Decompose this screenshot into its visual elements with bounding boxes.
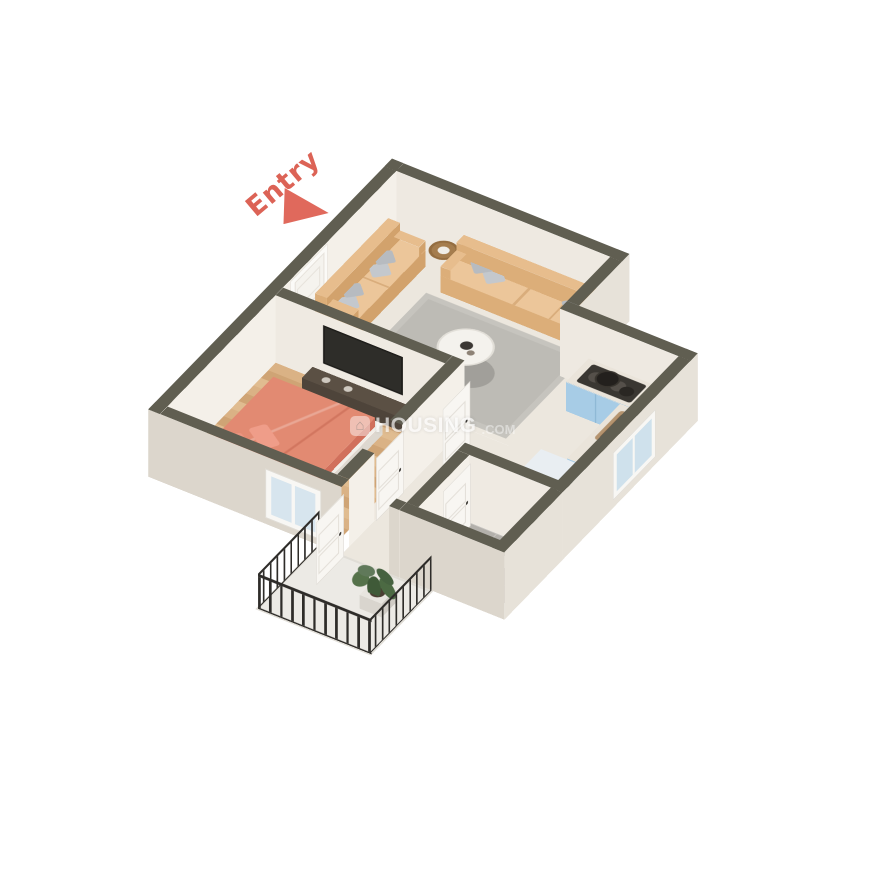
- coffee-table-decor: [458, 340, 476, 352]
- console-speaker: [320, 376, 332, 384]
- side-table-decor: [435, 245, 452, 256]
- watermark: ⌂ HOUSING .COM: [350, 414, 515, 438]
- console-speaker: [342, 385, 354, 393]
- entry-arrow-icon: [279, 188, 332, 230]
- housing-logo-icon: ⌂: [350, 416, 370, 436]
- coffee-table-decor: [465, 349, 476, 356]
- floor-plan-canvas: Entry ⌂ HOUSING .COM: [0, 0, 870, 870]
- watermark-name: HOUSING: [375, 414, 477, 438]
- watermark-suffix: .COM: [482, 422, 516, 437]
